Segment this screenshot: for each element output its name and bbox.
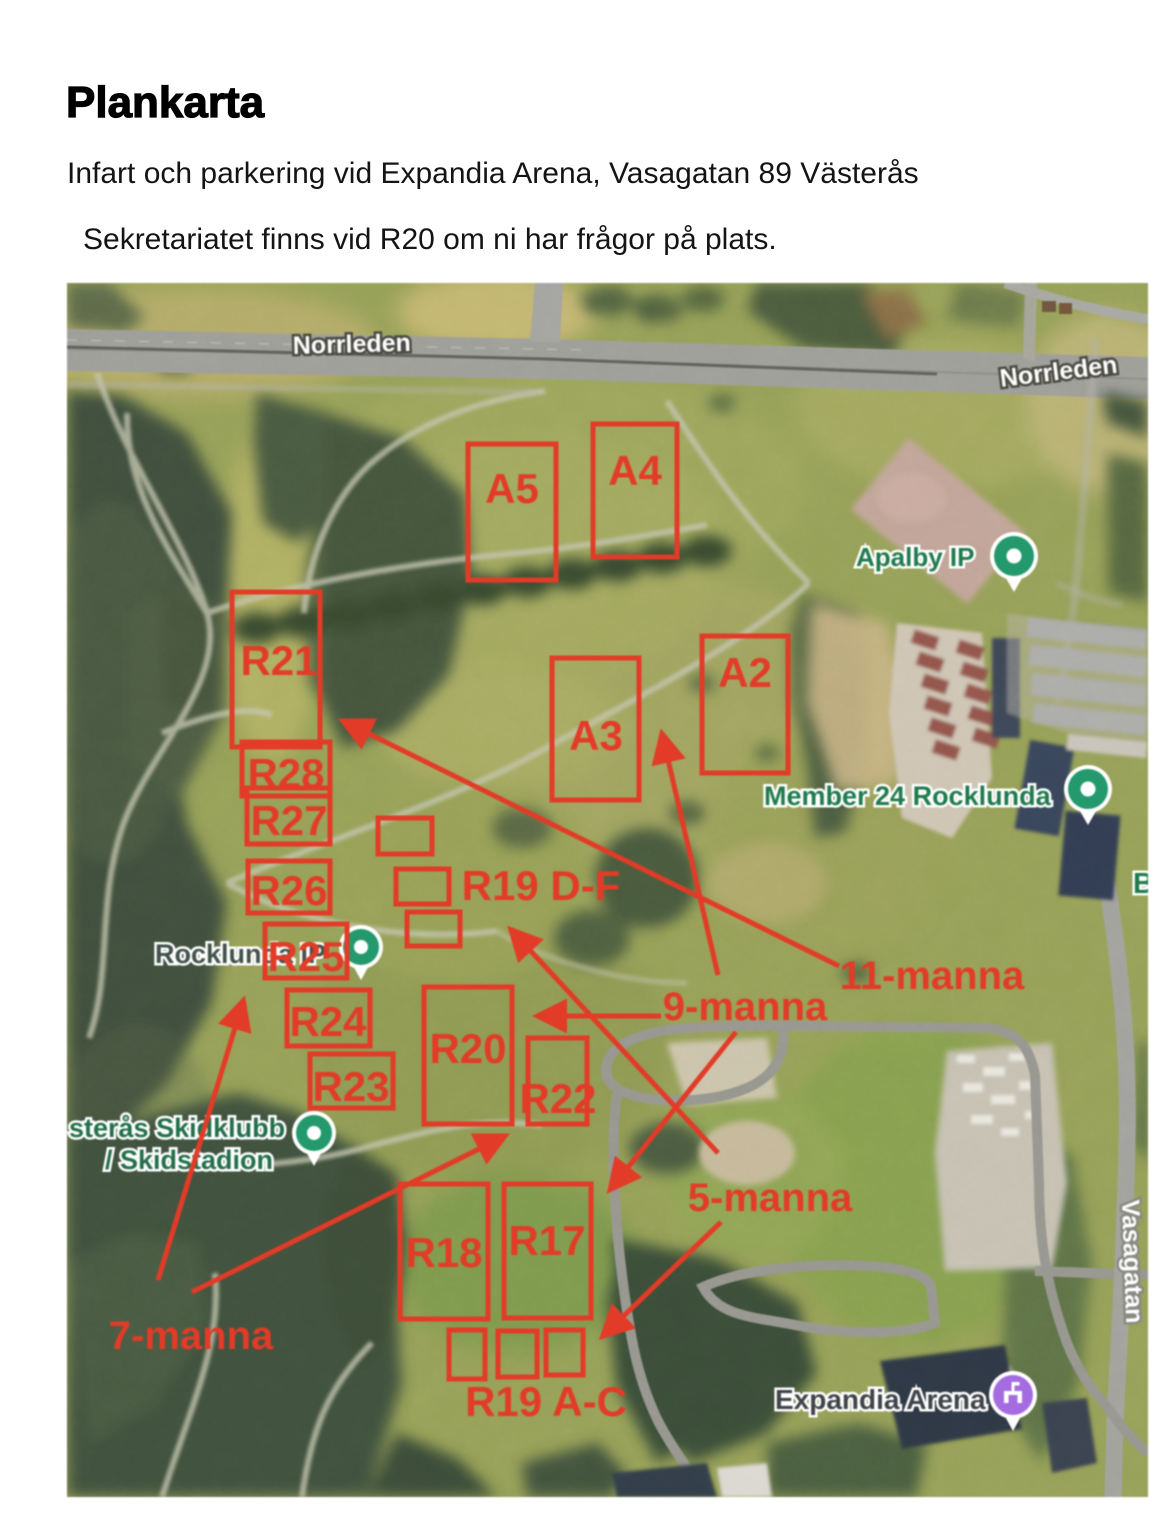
svg-text:R20: R20 [429,1025,506,1072]
svg-text:R24: R24 [289,998,367,1045]
svg-text:R21: R21 [240,637,317,684]
svg-text:A3: A3 [569,712,623,759]
svg-text:9-manna: 9-manna [663,985,828,1029]
svg-text:Member 24 Rocklunda: Member 24 Rocklunda [764,781,1052,811]
svg-text:R26: R26 [250,867,327,914]
svg-text:A5: A5 [485,465,539,512]
svg-text:Vasagatan: Vasagatan [1116,1199,1148,1324]
svg-text:B: B [1133,868,1148,900]
svg-text:R28: R28 [247,750,324,797]
svg-text:R17: R17 [508,1217,585,1264]
svg-text:Apalby IP: Apalby IP [856,542,974,572]
svg-text:Expandia Arena: Expandia Arena [775,1384,986,1415]
svg-text:11-manna: 11-manna [840,954,1025,998]
svg-text:A2: A2 [718,649,772,696]
svg-text:5-manna: 5-manna [688,1176,853,1220]
svg-text:R19 D-F: R19 D-F [462,862,621,909]
svg-text:Norrleden: Norrleden [292,329,411,360]
svg-text:R22: R22 [519,1075,596,1122]
svg-text:R27: R27 [250,797,327,844]
svg-text:A4: A4 [608,447,662,494]
svg-text:R19 A-C: R19 A-C [465,1378,627,1425]
svg-text:R23: R23 [312,1063,389,1110]
svg-text:7-manna: 7-manna [109,1314,274,1358]
svg-text:R18: R18 [405,1229,482,1276]
svg-text:R25: R25 [267,933,344,980]
svg-text:sterås Skidklubb: sterås Skidklubb [69,1113,285,1143]
